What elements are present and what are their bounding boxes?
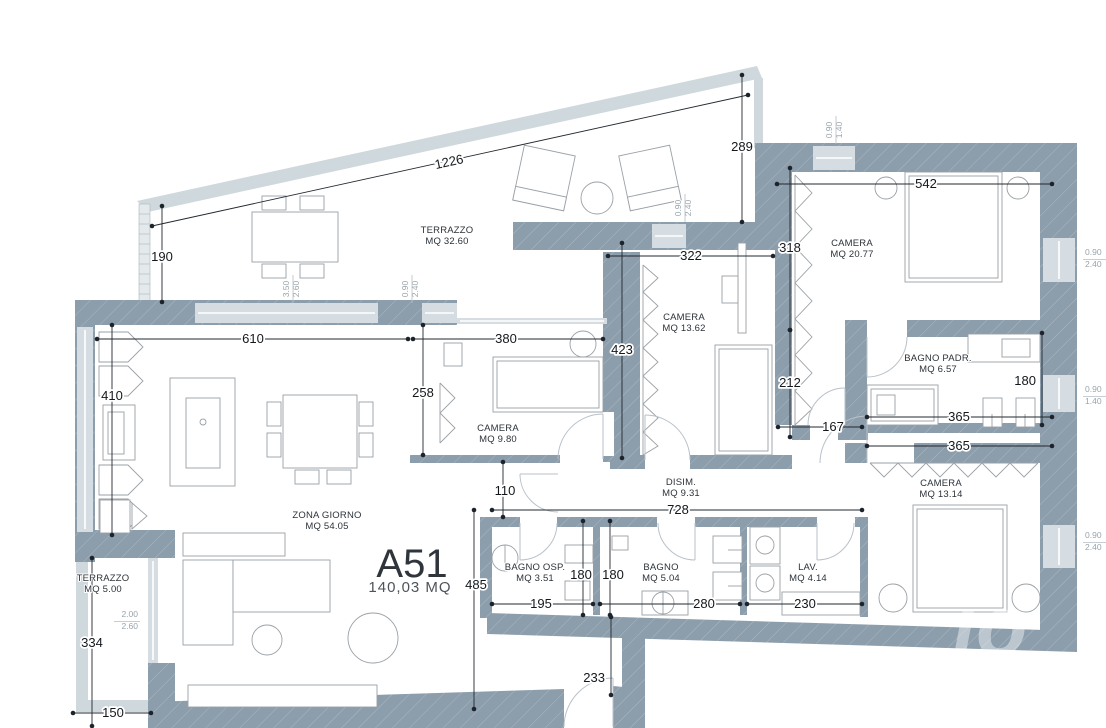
watermark: io xyxy=(953,579,1028,673)
dimension-endpoint xyxy=(746,93,751,98)
window-size-label: 2.40 xyxy=(1085,542,1102,552)
dimension-label: 365 xyxy=(948,438,970,453)
room-label: CAMERAMQ 13.14 xyxy=(919,478,962,500)
bedroom-1362-furniture xyxy=(715,243,772,455)
room-name: CAMERA xyxy=(831,238,873,249)
dimension-endpoint xyxy=(609,693,614,698)
room-label: TERRAZZOMQ 32.60 xyxy=(421,225,474,247)
room-label: BAGNOMQ 5.04 xyxy=(642,562,680,584)
dimension-endpoint xyxy=(1050,444,1055,449)
dimension-endpoint xyxy=(865,415,870,420)
dimension-label: 1226 xyxy=(433,151,464,172)
title: A51 140,03 MQ xyxy=(368,542,451,596)
dimension-endpoint xyxy=(406,337,411,342)
dimension-endpoint xyxy=(95,337,100,342)
room-name: CAMERA xyxy=(477,423,519,434)
dimension-label: 334 xyxy=(81,635,103,650)
dimension-endpoint xyxy=(90,724,95,728)
terrace-dining-set xyxy=(252,196,338,278)
window-size-label: 2.40 xyxy=(1085,259,1102,269)
room-label: TERRAZZOMQ 5.00 xyxy=(77,573,130,595)
dimension-endpoint xyxy=(620,456,625,461)
room-label: ZONA GIORNOMQ 54.05 xyxy=(292,510,361,532)
dimension-endpoint xyxy=(472,508,477,513)
window-size-label: 2.60 xyxy=(121,621,138,631)
dimension-endpoint xyxy=(771,254,776,259)
dimension-endpoint xyxy=(411,337,416,342)
dimension-endpoint xyxy=(740,220,745,225)
window-size-label: 1.40 xyxy=(1085,396,1102,406)
window-size-label: 2.00 xyxy=(121,609,138,619)
room-area: MQ 5.00 xyxy=(84,584,122,595)
dimension-endpoint xyxy=(160,300,165,305)
dimension-endpoint xyxy=(1050,415,1055,420)
room-area: MQ 13.14 xyxy=(919,489,962,500)
dimension-label: 150 xyxy=(102,705,124,720)
room-name: BAGNO OSP. xyxy=(505,562,565,573)
window-size-label: 1.40 xyxy=(834,121,844,138)
dimension-endpoint xyxy=(490,508,495,513)
room-label: CAMERAMQ 13.62 xyxy=(662,312,705,334)
room-name: DISIM. xyxy=(666,477,696,488)
window-size-label: 0.90 xyxy=(400,280,410,297)
dimension-endpoint xyxy=(740,73,745,78)
dimension-label: 485 xyxy=(465,577,487,592)
apartment-area-label: 140,03 MQ xyxy=(368,579,451,596)
room-area: MQ 54.05 xyxy=(305,521,348,532)
dimension-endpoint xyxy=(608,519,613,524)
dimension-label: 380 xyxy=(495,331,517,346)
dimension-label: 230 xyxy=(794,596,816,611)
dimension-label: 728 xyxy=(667,502,689,517)
dimension-endpoint xyxy=(775,182,780,187)
room-name: CAMERA xyxy=(663,312,705,323)
dimension-endpoint xyxy=(149,711,154,716)
dimension-endpoint xyxy=(150,224,155,229)
window-size-label: 2.40 xyxy=(683,199,693,216)
room-name: CAMERA xyxy=(920,478,962,489)
dimension-label: 610 xyxy=(242,331,264,346)
dimension-label: 258 xyxy=(412,385,434,400)
dimension-endpoint xyxy=(581,613,586,618)
room-label: BAGNO OSP.MQ 3.51 xyxy=(505,562,565,584)
dimension-endpoint xyxy=(490,602,495,607)
room-name: ZONA GIORNO xyxy=(292,510,361,521)
dimension-endpoint xyxy=(606,254,611,259)
room-name: BAGNO PADR. xyxy=(904,353,971,364)
room-label: BAGNO PADR.MQ 6.57 xyxy=(904,353,971,375)
dining-table xyxy=(267,395,373,484)
dimension-label: 195 xyxy=(530,596,552,611)
sofa-group xyxy=(183,533,398,707)
dimension-label: 190 xyxy=(151,249,173,264)
dimension-label: 423 xyxy=(611,342,633,357)
dimension-endpoint xyxy=(860,425,865,430)
dimension-label: 322 xyxy=(680,248,702,263)
window-size-label: 3.50 xyxy=(281,280,291,297)
window-size-label: 0.90 xyxy=(1085,384,1102,394)
window-size-label: 0.90 xyxy=(824,121,834,138)
dimension-label: 318 xyxy=(779,240,801,255)
room-name: TERRAZZO xyxy=(421,225,474,236)
room-label: DISIM.MQ 9.31 xyxy=(662,477,700,499)
dimension-label: 180 xyxy=(602,567,624,582)
dimension-endpoint xyxy=(160,204,165,209)
terrace-lounge-chairs xyxy=(513,145,682,214)
room-area: MQ 9.31 xyxy=(662,488,700,499)
room-area: MQ 9.80 xyxy=(479,434,517,445)
dimension-endpoint xyxy=(1040,423,1045,428)
dimension-endpoint xyxy=(620,241,625,246)
dimension-label: 410 xyxy=(101,388,123,403)
dimension-endpoint xyxy=(1050,182,1055,187)
bedroom-980-furniture xyxy=(444,331,603,412)
dimension-endpoint xyxy=(601,337,606,342)
room-label: LAV.MQ 4.14 xyxy=(789,562,827,584)
room-label: CAMERAMQ 9.80 xyxy=(477,423,519,445)
room-name: LAV. xyxy=(798,562,818,573)
dimension-label: 180 xyxy=(1014,373,1036,388)
dimension-endpoint xyxy=(776,425,781,430)
kitchen-island xyxy=(170,378,235,486)
room-name: TERRAZZO xyxy=(77,573,130,584)
dimension-endpoint xyxy=(788,328,793,333)
dimension-endpoint xyxy=(865,444,870,449)
dimension-endpoint xyxy=(501,460,506,465)
dimension-label: 212 xyxy=(779,375,801,390)
dimension-label: 180 xyxy=(570,567,592,582)
dimension-label: 542 xyxy=(915,176,937,191)
dimension-endpoint xyxy=(71,711,76,716)
dimension-endpoint xyxy=(598,602,603,607)
kitchen-cabinets xyxy=(99,332,147,533)
dimension-label: 110 xyxy=(495,483,516,498)
window-size-label: 2.60 xyxy=(291,280,301,297)
room-label: CAMERAMQ 20.77 xyxy=(830,238,873,260)
dimension-endpoint xyxy=(90,556,95,561)
room-area: MQ 6.57 xyxy=(919,364,957,375)
dimension-label: 167 xyxy=(822,419,844,434)
window-size-label: 0.90 xyxy=(1085,530,1102,540)
room-area: MQ 20.77 xyxy=(830,249,873,260)
dimension-endpoint xyxy=(745,602,750,607)
dimension-endpoint xyxy=(788,435,793,440)
dimension-label: 233 xyxy=(583,670,605,685)
room-area: MQ 5.04 xyxy=(642,573,680,584)
dimension-endpoint xyxy=(110,533,115,538)
dimension-endpoint xyxy=(1040,331,1045,336)
dimension-endpoint xyxy=(421,323,426,328)
room-area: MQ 13.62 xyxy=(662,323,705,334)
floor-plan: 1226190289542318212322423167610380410258… xyxy=(0,0,1106,728)
room-area: MQ 4.14 xyxy=(789,573,827,584)
master-bedroom-furniture xyxy=(875,172,1029,282)
dimension-endpoint xyxy=(581,519,586,524)
dimension-endpoint xyxy=(591,602,596,607)
dimension-label: 289 xyxy=(731,139,753,154)
dimension-endpoint xyxy=(421,453,426,458)
dimension-label: 365 xyxy=(948,409,970,424)
room-name: BAGNO xyxy=(643,562,678,573)
dimension-endpoint xyxy=(110,323,115,328)
room-area: MQ 32.60 xyxy=(425,236,468,247)
dimension-endpoint xyxy=(738,602,743,607)
dimension-endpoint xyxy=(860,602,865,607)
room-area: MQ 3.51 xyxy=(516,573,554,584)
dimension-endpoint xyxy=(788,166,793,171)
dimension-label: 280 xyxy=(693,596,715,611)
dimension-endpoint xyxy=(501,515,506,520)
window-size-label: 0.90 xyxy=(673,199,683,216)
dimension-endpoint xyxy=(472,707,477,712)
window-size-label: 0.90 xyxy=(1085,247,1102,257)
window-size-label: 2.40 xyxy=(410,280,420,297)
dimension-endpoint xyxy=(609,615,614,620)
dimension-endpoint xyxy=(860,508,865,513)
